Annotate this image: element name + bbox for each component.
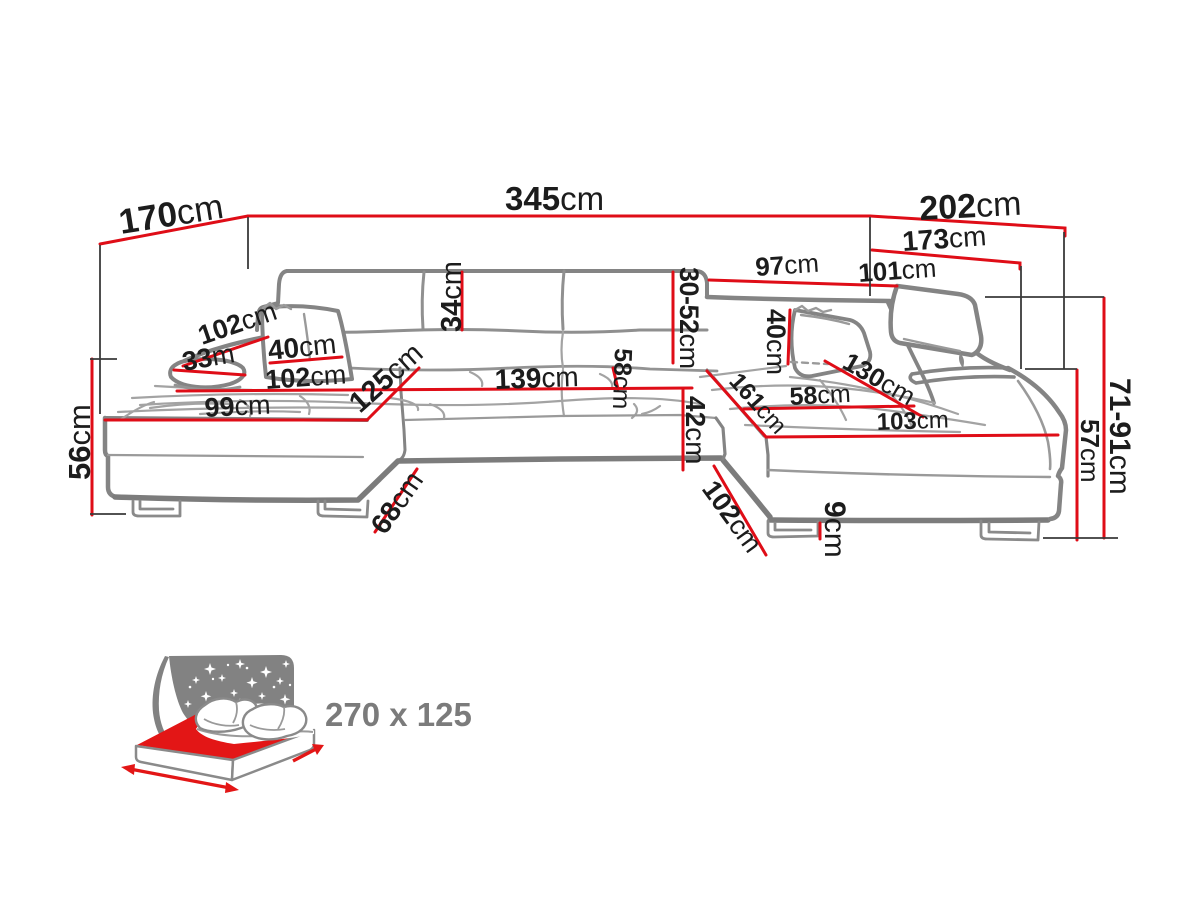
svg-text:9cm: 9cm [818,501,851,558]
svg-text:56cm: 56cm [62,404,97,480]
svg-text:103cm: 103cm [876,406,949,435]
svg-text:58cm: 58cm [607,348,637,410]
svg-text:270 x 125: 270 x 125 [325,696,472,733]
svg-text:40cm: 40cm [761,309,791,375]
svg-text:30-52cm: 30-52cm [674,267,704,369]
svg-text:99cm: 99cm [204,390,272,423]
svg-text:101cm: 101cm [857,253,937,288]
svg-text:173cm: 173cm [901,220,987,257]
svg-text:97cm: 97cm [754,248,820,282]
svg-text:71-91cm: 71-91cm [1103,378,1136,495]
svg-text:57cm: 57cm [1075,419,1105,483]
svg-text:345cm: 345cm [505,180,604,217]
svg-text:139cm: 139cm [494,361,579,395]
svg-text:102cm: 102cm [264,359,347,395]
svg-text:58cm: 58cm [789,380,852,411]
svg-text:42cm: 42cm [680,396,711,464]
svg-text:34cm: 34cm [436,261,468,332]
